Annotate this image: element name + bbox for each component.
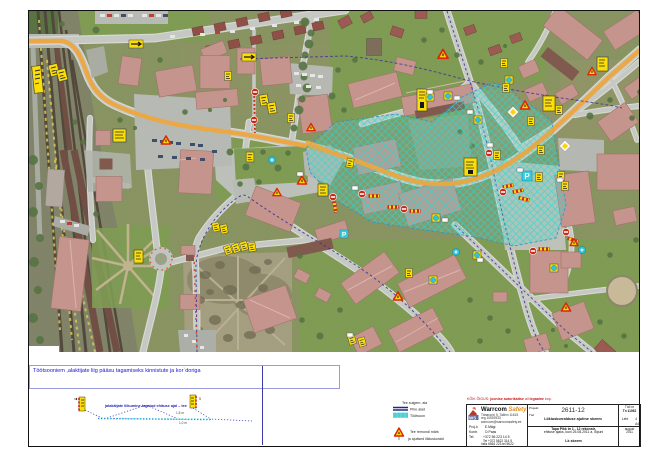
- svg-text:Tee remondi märk: Tee remondi märk: [410, 430, 439, 434]
- svg-text:Tee sulgem. ala: Tee sulgem. ala: [402, 401, 427, 405]
- svg-text:1,0 m: 1,0 m: [179, 421, 187, 425]
- svg-text:5: 5: [199, 397, 201, 401]
- svg-text:Töötsoon: Töötsoon: [410, 414, 425, 418]
- svg-text:Piire alad: Piire alad: [410, 408, 425, 412]
- svg-text:ja ajutised liikluskorald: ja ajutised liikluskorald: [407, 437, 444, 441]
- svg-text:jalakäijate liikumine tagatud: jalakäijate liikumine tagatud ehituse aj…: [104, 404, 187, 408]
- svg-text:WS: WS: [469, 416, 476, 421]
- svg-text:1,5 m: 1,5 m: [176, 411, 184, 415]
